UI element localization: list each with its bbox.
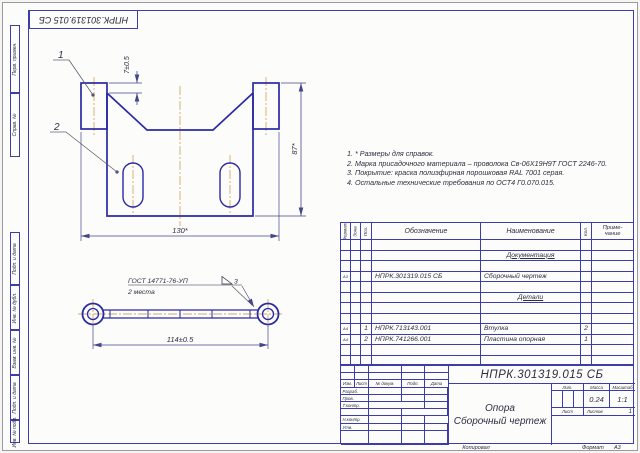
spec-cell xyxy=(341,303,351,314)
margin-label: Справ. № xyxy=(12,114,18,137)
spec-cell xyxy=(592,251,633,262)
spec-cell: НПРК.301319.015 СБ xyxy=(372,272,481,283)
doc-type: Сборочный чертеж xyxy=(454,415,546,428)
spec-cell xyxy=(351,293,361,304)
spec-cell xyxy=(581,240,592,251)
spec-cell xyxy=(592,272,633,283)
spec-cell: Пластина опорная xyxy=(481,335,581,346)
margin-cell-vzam-inv: Взам. инв. № xyxy=(10,330,20,375)
spec-cell xyxy=(341,282,351,293)
spec-cell xyxy=(361,303,372,314)
spec-cell xyxy=(481,261,581,272)
spec-cell xyxy=(372,345,481,356)
spec-cell xyxy=(592,240,633,251)
sheet-label: Лист xyxy=(552,408,584,416)
drawing-views: 1 2 7±0.5 87* 130* 114±0.5 ГОСТ 14771-76… xyxy=(36,36,336,366)
title-block-right: Лит. Масса Масштаб 0.24 1:1 Лист Листов … xyxy=(552,384,635,445)
spec-cell xyxy=(351,335,361,346)
spec-cell xyxy=(592,345,633,356)
position-callouts xyxy=(50,60,118,173)
weld-flag-icon xyxy=(222,277,232,285)
spec-cell xyxy=(372,282,481,293)
spec-cell xyxy=(592,282,633,293)
copied-label: Копировал xyxy=(446,445,506,451)
dim-height-label: 87* xyxy=(290,142,299,154)
margin-cell-podp-data-2: Подп. и дата xyxy=(10,375,20,420)
spec-cell: 2 xyxy=(361,335,372,346)
spec-cell: Документация xyxy=(481,251,581,262)
spec-cell xyxy=(592,324,633,335)
tech-req-line: 1. * Размеры для справок. xyxy=(347,149,635,159)
spec-cell xyxy=(361,282,372,293)
tb-col-dokum: № докум. xyxy=(369,380,402,388)
rotated-designation-box: НПРК.301319.015 СБ xyxy=(29,10,138,29)
spec-cell xyxy=(592,303,633,314)
spec-cell xyxy=(351,251,361,262)
spec-cell: НПРК.713143.001 xyxy=(372,324,481,335)
spec-cell xyxy=(581,303,592,314)
product-name: Опора xyxy=(485,402,515,415)
tech-req-line: 2. Марка присадочного материала – провол… xyxy=(347,159,635,169)
spec-header-format: Формат xyxy=(341,223,351,240)
margin-cell-podp-data-1: Подп. и дата xyxy=(10,232,20,285)
title-block: Изм. Лист № докум. Подп. Дата Разраб. Пр… xyxy=(340,365,634,444)
spec-cell xyxy=(351,303,361,314)
spec-header-zone: Зона xyxy=(351,223,361,240)
spec-cell xyxy=(581,314,592,325)
sheets-value: 1 xyxy=(629,409,632,415)
format-value: А3 xyxy=(614,445,621,451)
title-block-left: Изм. Лист № докум. Подп. Дата Разраб. Пр… xyxy=(341,366,449,445)
spec-cell xyxy=(372,261,481,272)
lit-label: Лит. xyxy=(552,384,584,391)
spec-cell xyxy=(341,261,351,272)
spec-header-name: Наименование xyxy=(481,223,581,240)
dim-width-label: 130* xyxy=(172,226,189,235)
tb-col-data: Дата xyxy=(425,380,448,388)
spec-cell xyxy=(581,261,592,272)
spec-cell xyxy=(372,251,481,262)
spec-header-note: Приме-чание xyxy=(592,223,633,240)
spec-cell: Втулка xyxy=(481,324,581,335)
spec-cell xyxy=(361,240,372,251)
spec-cell xyxy=(351,345,361,356)
spec-cell xyxy=(481,314,581,325)
spec-cell xyxy=(581,282,592,293)
tb-col-podp: Подп. xyxy=(402,380,425,388)
margin-label: Подп. и дата xyxy=(12,382,18,413)
drawing-sheet: Перв. примен. Справ. № Подп. и дата Инв.… xyxy=(0,0,640,453)
title-block-name: Опора Сборочный чертеж xyxy=(449,384,552,445)
spec-cell xyxy=(361,314,372,325)
margin-label: Подп. и дата xyxy=(12,243,18,274)
spec-cell xyxy=(481,240,581,251)
spec-cell xyxy=(372,240,481,251)
margin-label: Инв. № подл. xyxy=(12,416,18,447)
spec-cell: А4 xyxy=(341,324,351,335)
spec-cell: НПРК.741266.001 xyxy=(372,335,481,346)
spec-cell xyxy=(481,345,581,356)
spec-header-designation: Обозначение xyxy=(372,223,481,240)
spec-cell: Сборочный чертеж xyxy=(481,272,581,283)
spec-cell xyxy=(341,293,351,304)
spec-cell xyxy=(581,293,592,304)
technical-requirements: 1. * Размеры для справок. 2. Марка приса… xyxy=(347,149,635,188)
dim-length-label: 114±0.5 xyxy=(167,335,194,344)
tb-col-izm: Изм. xyxy=(341,380,355,388)
spec-cell xyxy=(592,335,633,346)
spec-cell xyxy=(341,251,351,262)
callout-1-label: 1 xyxy=(58,50,64,61)
margin-label: Перв. примен. xyxy=(12,42,18,75)
margin-cell-inv-dubl: Инв. № дубл. xyxy=(10,285,20,330)
spec-cell xyxy=(592,314,633,325)
spec-cell xyxy=(361,345,372,356)
tb-role-prov: Пров. xyxy=(341,395,369,402)
spec-cell xyxy=(481,303,581,314)
spec-header-pos: Поз. xyxy=(361,223,372,240)
tb-role-nkontr: Н.контр. xyxy=(341,416,369,424)
spec-cell xyxy=(481,282,581,293)
spec-cell xyxy=(351,314,361,325)
spec-cell xyxy=(361,261,372,272)
spec-cell xyxy=(351,282,361,293)
spec-cell xyxy=(372,293,481,304)
mass-value: 0.24 xyxy=(584,391,610,408)
spec-cell xyxy=(592,261,633,272)
margin-cell-inv-podl: Инв. № подл. xyxy=(10,420,20,443)
weld-places-label: 2 места xyxy=(127,289,155,296)
spec-cell: 1 xyxy=(361,324,372,335)
spec-cell xyxy=(351,272,361,283)
title-block-designation: НПРК.301319.015 СБ xyxy=(449,366,635,384)
spec-cell xyxy=(351,240,361,251)
spec-cell xyxy=(581,345,592,356)
margin-label: Взам. инв. № xyxy=(12,337,18,368)
sheets-label: Листов xyxy=(587,409,603,414)
tb-role-razrab: Разраб. xyxy=(341,388,369,395)
spec-cell xyxy=(361,272,372,283)
dimension-lines xyxy=(81,71,306,349)
spec-cell xyxy=(341,314,351,325)
spec-cell xyxy=(341,240,351,251)
spec-cell xyxy=(581,251,592,262)
spec-cell: 2 xyxy=(581,324,592,335)
margin-label: Инв. № дубл. xyxy=(12,292,18,323)
spec-table: Формат Зона Поз. Обозначение Наименовани… xyxy=(340,222,634,365)
tb-role-utv: Утв. xyxy=(341,424,369,431)
mass-label: Масса xyxy=(584,384,610,391)
spec-cell xyxy=(592,293,633,304)
spec-cell: А3 xyxy=(341,272,351,283)
spec-cell: 1 xyxy=(581,335,592,346)
spec-cell xyxy=(361,293,372,304)
org-cell xyxy=(552,416,635,445)
weld-gost-label: ГОСТ 14771-76-УП xyxy=(128,278,188,285)
spec-cell xyxy=(372,314,481,325)
spec-cell xyxy=(372,303,481,314)
scale-value: 1:1 xyxy=(610,391,635,408)
rotated-designation-text: НПРК.301319.015 СБ xyxy=(39,15,128,25)
tb-col-list: Лист xyxy=(355,380,369,388)
tech-req-line: 4. Остальные технические требования по О… xyxy=(347,178,635,188)
spec-cell xyxy=(351,261,361,272)
format-label: Формат xyxy=(582,445,604,451)
tb-role-tkontr: Т.контр. xyxy=(341,402,369,409)
spec-cell xyxy=(341,345,351,356)
callout-2-label: 2 xyxy=(53,122,60,133)
spec-cell xyxy=(581,272,592,283)
tech-req-line: 3. Покрытие: краска полиэфирная порошков… xyxy=(347,168,635,178)
spec-cell xyxy=(351,324,361,335)
scale-label: Масштаб xyxy=(610,384,635,391)
spec-cell: А4 xyxy=(341,335,351,346)
margin-cell-sprav-no: Справ. № xyxy=(10,93,20,157)
spec-cell: Детали xyxy=(481,293,581,304)
weld-size-label: 3 xyxy=(234,279,238,286)
spec-header-qty: Кол. xyxy=(581,223,592,240)
spec-cell xyxy=(361,251,372,262)
dim-gap-label: 7±0.5 xyxy=(124,56,131,74)
margin-cell-perv-primen: Перв. примен. xyxy=(10,25,20,93)
